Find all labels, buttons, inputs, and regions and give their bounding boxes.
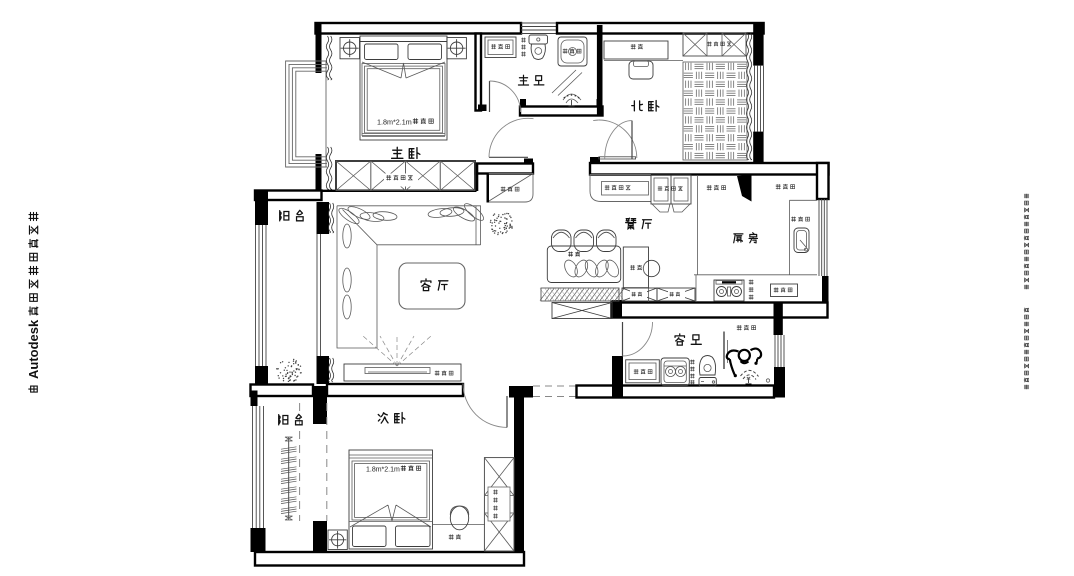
svg-text:1.8m*2.1m: 1.8m*2.1m [366, 467, 400, 474]
svg-text:Autodesk: Autodesk [26, 319, 41, 379]
svg-text:1.8m*2.1m: 1.8m*2.1m [377, 118, 412, 127]
